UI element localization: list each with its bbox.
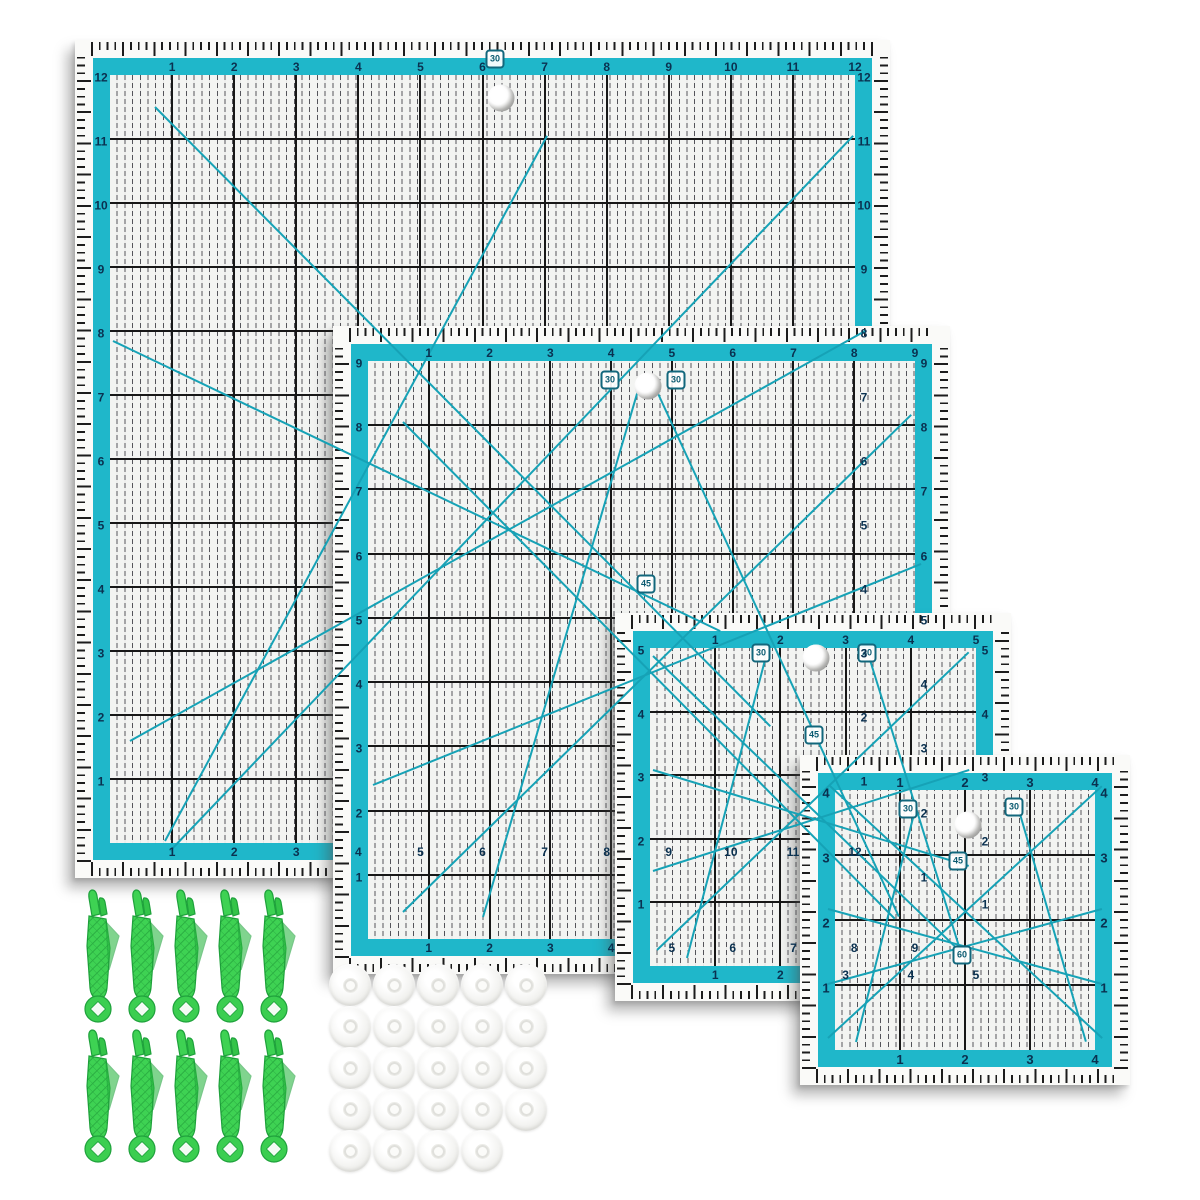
inch-number-top: 4 [907,632,914,649]
bobbin-disc [329,1006,371,1048]
angle-marker-badge: 30 [486,50,505,69]
grid-major-horizontal [835,984,1095,986]
inch-number-bottom: 7 [541,844,548,861]
inch-number-top: 1 [712,632,719,649]
thread-clip-graphic [78,1026,120,1164]
inch-number-top: 3 [547,345,554,362]
inch-number-bottom: 10 [724,844,737,861]
hanging-hole [803,645,830,672]
inch-number-top: 3 [1026,774,1033,791]
inch-number-bottom: 3 [547,940,554,957]
inch-number-bottom: 6 [729,940,736,957]
inch-number-left: 3 [633,770,649,787]
angle-marker-badge: 60 [953,946,972,965]
inch-number-top: 11 [787,59,800,76]
angle-marker-badge: 45 [637,575,656,594]
bobbin-disc [329,1130,371,1172]
ruler-tick-strip-top [631,615,995,629]
bobbin-disc [417,1006,459,1048]
inch-number-bottom: 5 [669,940,676,957]
inch-number-bottom: 3 [1026,1051,1033,1068]
inch-number-top: 7 [790,345,797,362]
inch-number-top: 2 [231,59,238,76]
thread-clip-graphic [78,886,120,1024]
inch-number-top: 5 [417,59,424,76]
inch-number-bottom: 2 [961,1051,968,1068]
bobbin-disc [505,1089,547,1131]
bobbin-disc [461,1089,503,1131]
angle-marker-badge: 45 [805,726,824,745]
inch-number-right: 4 [1096,785,1112,802]
bobbin-disc [417,1047,459,1089]
inch-number-left: 5 [93,518,109,535]
inch-number-right: 4 [977,706,993,723]
inch-number-right: 6 [856,454,872,471]
inch-number-top: 4 [355,59,362,76]
inch-number-left: 4 [633,706,649,723]
inch-number-top: 10 [724,59,737,76]
thread-clip-graphic [122,886,164,1024]
bobbin-disc [329,1089,371,1131]
inch-number-bottom: 4 [608,940,615,957]
inch-number-left: 8 [93,326,109,343]
angle-marker-badge: 30 [601,371,620,390]
bobbin-disc [373,1047,415,1089]
bobbin-disc [461,1130,503,1172]
inch-number-bottom: 12 [848,844,861,861]
inch-number-left: 5 [351,612,367,629]
inch-number-top: 4 [608,345,615,362]
thread-clip [122,1026,164,1164]
grid-major-vertical [1029,790,1031,1050]
bobbin-disc [461,964,503,1006]
angle-marker-badge: 30 [752,644,771,663]
bobbin-disc [417,1130,459,1172]
angle-marker-badge: 30 [1005,798,1024,817]
inch-number-left: 2 [351,805,367,822]
inch-number-bottom: 1 [712,967,719,984]
bobbin-disc [461,1006,503,1048]
product-photo-canvas: 1234567891011121234567891011121211109876… [0,0,1200,1200]
bobbin-disc [417,1089,459,1131]
inch-number-top: 3 [842,632,849,649]
inch-number-top: 2 [777,632,784,649]
ruler-tick-strip-left [77,56,91,862]
inch-number-bottom: 11 [787,844,800,861]
inch-number-right: 7 [856,390,872,407]
inch-number-right: 5 [977,643,993,660]
grid-major-vertical [610,361,612,939]
inch-number-right: 3 [1096,850,1112,867]
inch-number-right: 10 [856,198,872,215]
inch-number-left: 5 [633,643,649,660]
inch-number-top: 1 [425,345,432,362]
inch-number-right: 3 [977,770,993,787]
inch-number-bottom: 8 [851,940,858,957]
thread-clip [78,886,120,1024]
inch-number-left: 8 [351,420,367,437]
inch-number-left: 4 [351,677,367,694]
inch-number-left: 1 [633,897,649,914]
inch-number-right: 3 [916,741,932,758]
inch-number-right: 2 [1096,915,1112,932]
thread-clip-graphic [254,886,296,1024]
grid-major-vertical [714,648,716,966]
inch-number-left: 2 [818,915,834,932]
inch-number-left: 9 [93,262,109,279]
bobbin-disc [373,964,415,1006]
inch-number-right: 7 [916,484,932,501]
inch-number-top: 5 [669,345,676,362]
thread-clip [254,1026,296,1164]
thread-clip [166,886,208,1024]
inch-number-right: 2 [856,710,872,727]
bobbin-disc [505,1047,547,1089]
inch-number-bottom: 1 [896,1051,903,1068]
inch-number-left: 12 [93,70,109,87]
inch-number-bottom: 1 [425,940,432,957]
grid-major-horizontal [650,711,976,713]
bobbin-disc [373,1130,415,1172]
inch-number-left: 6 [93,454,109,471]
ruler-tick-strip-right [1114,771,1128,1069]
inch-number-top: 6 [479,59,486,76]
thread-clip [78,1026,120,1164]
inch-number-top: 2 [486,345,493,362]
inch-number-left: 1 [351,869,367,886]
inch-number-right: 2 [916,805,932,822]
inch-number-top: 2 [961,774,968,791]
inch-number-left: 2 [633,833,649,850]
thread-clip-graphic [210,1026,252,1164]
ruler-tick-strip-top [816,757,1114,771]
inch-number-right: 6 [916,548,932,565]
inch-number-right: 12 [856,70,872,87]
inch-number-right: 1 [856,774,872,791]
inch-number-left: 4 [93,582,109,599]
inch-number-left: 7 [93,390,109,407]
thread-clip [210,886,252,1024]
inch-number-right: 8 [856,326,872,343]
thread-clip [166,1026,208,1164]
inch-number-left: 1 [93,774,109,791]
inch-number-right: 9 [856,262,872,279]
inch-number-bottom: 4 [355,844,362,861]
inch-number-bottom: 2 [231,844,238,861]
inch-number-top: 8 [851,345,858,362]
ruler-tick-strip-bottom [816,1069,1114,1083]
grid-major-horizontal [368,424,915,426]
inch-number-bottom: 7 [790,940,797,957]
inch-number-right: 1 [1096,980,1112,997]
inch-number-bottom: 4 [907,967,914,984]
angle-marker-badge: 30 [899,800,918,819]
inch-number-bottom: 8 [603,844,610,861]
inch-number-bottom: 3 [842,967,849,984]
inch-number-bottom: 9 [912,940,919,957]
bobbin-disc [417,964,459,1006]
thread-clip-graphic [166,1026,208,1164]
thread-clip [210,1026,252,1164]
bobbin-disc [505,1006,547,1048]
inch-number-top: 1 [896,774,903,791]
thread-clip-graphic [254,1026,296,1164]
inch-number-top: 1 [169,59,176,76]
thread-clip-graphic [166,886,208,1024]
inch-number-left: 4 [818,785,834,802]
inch-number-left: 7 [351,484,367,501]
inch-number-left: 2 [93,710,109,727]
ruler-tick-strip-top [91,42,874,56]
inch-number-top: 8 [603,59,610,76]
grid-major-vertical [549,361,551,939]
inch-number-right: 5 [856,518,872,535]
inch-number-top: 9 [665,59,672,76]
inch-number-left: 9 [351,356,367,373]
inch-number-right: 1 [916,869,932,886]
inch-number-left: 3 [93,646,109,663]
thread-clip-graphic [210,886,252,1024]
inch-number-right: 9 [916,356,932,373]
inch-number-bottom: 5 [417,844,424,861]
inch-number-left: 1 [818,980,834,997]
inch-number-bottom: 6 [479,844,486,861]
inch-number-bottom: 2 [777,967,784,984]
inch-number-right: 3 [856,646,872,663]
inch-number-left: 6 [351,548,367,565]
inch-number-bottom: 3 [293,844,300,861]
inch-number-right: 2 [977,833,993,850]
thread-clip [122,886,164,1024]
inch-number-left: 11 [93,134,109,151]
inch-number-top: 6 [729,345,736,362]
inch-number-left: 3 [818,850,834,867]
inch-number-right: 4 [916,677,932,694]
inch-number-bottom: 4 [1091,1051,1098,1068]
inch-number-left: 3 [351,741,367,758]
inch-number-bottom: 9 [665,844,672,861]
angle-marker-badge: 45 [949,852,968,871]
thread-clip [254,886,296,1024]
inch-number-bottom: 1 [169,844,176,861]
inch-number-right: 4 [856,582,872,599]
angle-marker-badge: 30 [667,371,686,390]
bobbin-disc [329,964,371,1006]
inch-number-right: 11 [856,134,872,151]
inch-number-bottom: 2 [486,940,493,957]
quilting-ruler-mini: 123412344321432130304560 [800,755,1130,1085]
hanging-hole [488,85,515,112]
bobbin-disc [329,1047,371,1089]
bobbin-disc [373,1006,415,1048]
inch-number-right: 5 [916,612,932,629]
inch-number-top: 7 [541,59,548,76]
hanging-hole [635,373,662,400]
bobbin-disc [373,1089,415,1131]
inch-number-top: 3 [293,59,300,76]
ruler-tick-strip-left [335,342,349,958]
inch-number-right: 1 [977,897,993,914]
inch-number-bottom: 5 [973,967,980,984]
bobbin-disc [505,964,547,1006]
inch-number-right: 8 [916,420,932,437]
grid-major-vertical [489,361,491,939]
inch-number-left: 10 [93,198,109,215]
bobbin-disc [461,1047,503,1089]
thread-clip-graphic [122,1026,164,1164]
